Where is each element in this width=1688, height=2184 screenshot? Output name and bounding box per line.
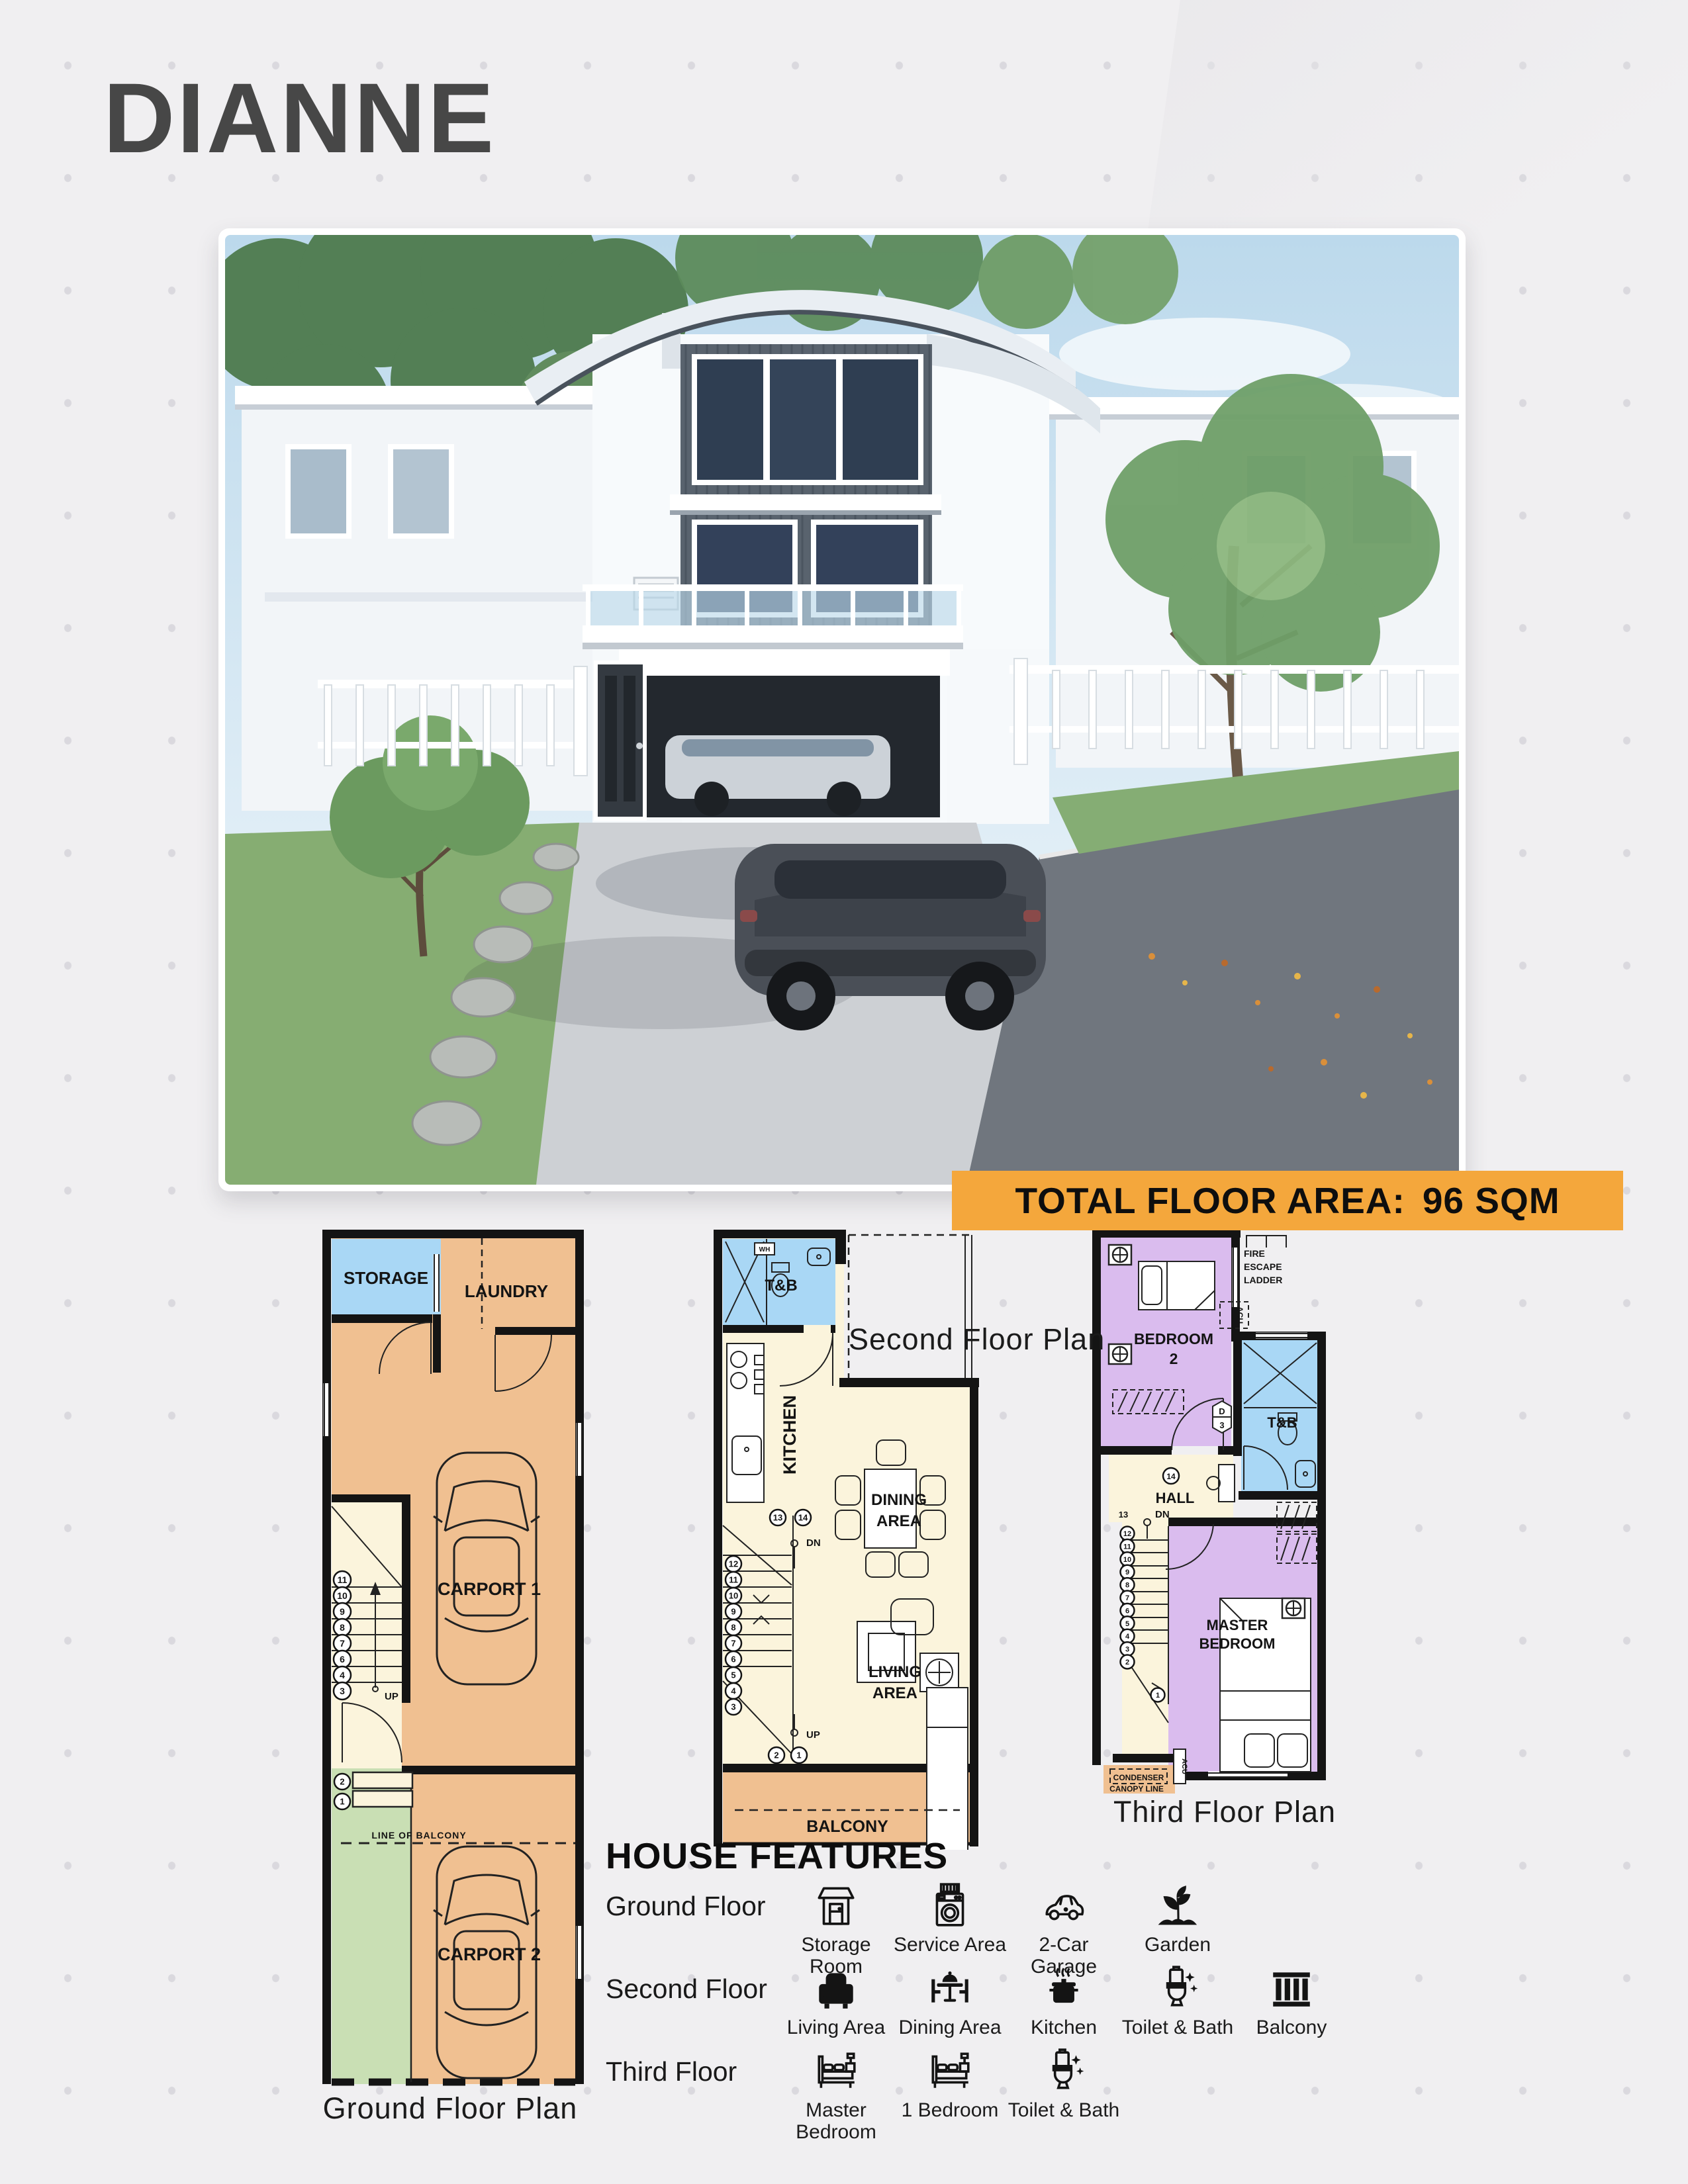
fire-label-1: FIRE [1244, 1248, 1265, 1259]
garden-icon [1154, 1882, 1201, 1929]
master-bedroom-icon [812, 2047, 860, 2095]
condenser-label: CONDENSER [1113, 1773, 1164, 1782]
second-floor-plan: WH DN UP [695, 1224, 1006, 1850]
flyer-page: DIANNE [0, 0, 1688, 2184]
house-features-heading: HOUSE FEATURES [606, 1835, 948, 1877]
stair-number-label: 12 [1123, 1530, 1131, 1538]
stair-number-label: 6 [731, 1655, 735, 1664]
stair-number-label: 4 [1125, 1633, 1130, 1641]
dn-label: DN [806, 1537, 821, 1549]
stair-number-label: 6 [1125, 1607, 1129, 1615]
stair-number-label: 9 [1125, 1569, 1129, 1576]
bedroom2-label-2: 2 [1170, 1350, 1178, 1367]
feature-item: Storage Room [778, 1882, 894, 1978]
feature-item: Kitchen [1006, 1964, 1122, 2038]
feature-item: Garden [1119, 1882, 1236, 1956]
floor-area-label: TOTAL FLOOR AREA: [1015, 1179, 1405, 1222]
feature-label: Living Area [778, 2017, 894, 2038]
living-label-1: LIVING [868, 1663, 921, 1681]
ground-floor-plan: STORAGE LAUNDRY CARPORT 1 CARPORT 2 LINE… [301, 1224, 599, 2101]
feature-label: Kitchen [1006, 2017, 1122, 2038]
hall-label: HALL [1156, 1490, 1195, 1506]
front-door [596, 662, 645, 819]
feature-item: 1 Bedroom [892, 2047, 1008, 2121]
garden-area [332, 1768, 411, 2084]
storage-label: STORAGE [344, 1268, 428, 1288]
feature-label: Toilet & Bath [1006, 2099, 1122, 2121]
house-photo [218, 228, 1466, 1191]
bedroom2-label-1: BEDROOM [1134, 1330, 1213, 1347]
feature-floor-label: Second Floor [606, 1974, 767, 2005]
stair-number-label: 11 [729, 1575, 738, 1585]
tb-label: T&B [765, 1277, 797, 1295]
feature-item: Balcony [1233, 1964, 1350, 2038]
carport1-label: CARPORT 1 [438, 1579, 541, 1599]
stair-number-label: 11 [338, 1574, 348, 1585]
floor-area-banner: TOTAL FLOOR AREA: 96 SQM [952, 1171, 1623, 1230]
stair-number-label: 2 [774, 1751, 778, 1760]
stair-number-label: 12 [729, 1559, 738, 1569]
service-area-icon [926, 1882, 974, 1929]
stair-number-label: 8 [1125, 1582, 1129, 1590]
toilet-bath-icon [1040, 2047, 1088, 2095]
master-label-1: MASTER [1207, 1617, 1268, 1633]
feature-label: Garden [1119, 1934, 1236, 1956]
dining-label-1: DINING [871, 1491, 927, 1509]
picket-fence-left [318, 666, 587, 776]
living-label-2: AREA [872, 1684, 917, 1702]
bedroom-icon [926, 2047, 974, 2095]
stair-number-label: 13 [773, 1513, 782, 1523]
stair-number-label: 5 [1125, 1620, 1129, 1628]
tb-label: T&B [1267, 1414, 1297, 1431]
line-of-balcony-label: LINE OF BALCONY [371, 1830, 466, 1841]
up-label: UP [385, 1691, 399, 1702]
feature-item: 2-Car Garage [1006, 1882, 1122, 1978]
acu-bottom-label: ACU [1180, 1758, 1188, 1774]
stair-number-label: 9 [340, 1606, 345, 1617]
kitchen-label: KITCHEN [780, 1395, 800, 1475]
living-area-icon [812, 1964, 860, 2012]
stair-number-label: 3 [731, 1702, 735, 1712]
feature-item: Living Area [778, 1964, 894, 2038]
canopy-line-label: CANOPY LINE [1109, 1784, 1164, 1794]
balcony-icon [1268, 1964, 1315, 2012]
feature-item: Service Area [892, 1882, 1008, 1956]
stair-number-label: 10 [337, 1590, 348, 1601]
step13-label: 13 [1119, 1510, 1128, 1520]
feature-floor-label: Third Floor [606, 2056, 737, 2087]
door-d-label: D [1219, 1406, 1225, 1416]
dn-label: DN [1155, 1509, 1170, 1520]
feature-label: 1 Bedroom [892, 2099, 1008, 2121]
feature-label: Service Area [892, 1934, 1008, 1956]
balcony-label: BALCONY [806, 1817, 888, 1836]
third-plan-caption: Third Floor Plan [1089, 1795, 1360, 1829]
stair-number-label: 3 [340, 1686, 345, 1696]
stair-number-label: 8 [340, 1622, 345, 1633]
feature-item: Toilet & Bath [1006, 2047, 1122, 2121]
stair-number-label: 1 [340, 1797, 344, 1807]
kitchen-icon [1040, 1964, 1088, 2012]
fire-label-2: ESCAPE [1244, 1261, 1282, 1272]
stair-number-label: 7 [1125, 1594, 1129, 1602]
up-label: UP [806, 1729, 820, 1741]
stair-number-label: 10 [729, 1591, 738, 1601]
ground-plan-caption: Ground Floor Plan [301, 2091, 599, 2126]
fire-label-3: LADDER [1244, 1275, 1282, 1285]
carport2-label: CARPORT 2 [438, 1944, 541, 1964]
stair-number-label: 14 [798, 1513, 808, 1523]
stair-number-label: 11 [1123, 1543, 1131, 1551]
laundry-label: LAUNDRY [465, 1281, 548, 1301]
stair-number-label: 6 [340, 1654, 345, 1664]
stair-number-label: 1 [1156, 1692, 1160, 1700]
wh-label: WH [759, 1246, 771, 1253]
toilet-bath-icon [1154, 1964, 1201, 2012]
stair-number-label: 10 [1123, 1556, 1131, 1564]
stair-number-label: 3 [1125, 1646, 1129, 1654]
house-render [225, 235, 1459, 1185]
feature-label: Dining Area [892, 2017, 1008, 2038]
feature-label: Toilet & Bath [1119, 2017, 1236, 2038]
feature-item: Dining Area [892, 1964, 1008, 2038]
stair-number-label: 2 [1125, 1659, 1129, 1666]
stair-number-label: 4 [731, 1686, 736, 1696]
landing14-label: 14 [1166, 1472, 1176, 1481]
storage-room-icon [812, 1882, 860, 1929]
third-floor-plan: D 3 14 13 DN BEDROOM 2 FIRE ESCAPE LADD [1089, 1228, 1357, 1800]
stair-number-label: 8 [731, 1623, 735, 1633]
master-label-2: BEDROOM [1199, 1635, 1276, 1652]
second-plan-caption: Second Floor Plan [849, 1322, 1105, 1357]
floor-area-value: 96 SQM [1423, 1179, 1560, 1222]
feature-label: Master Bedroom [778, 2099, 894, 2143]
car-garage-icon [1040, 1882, 1088, 1929]
stair-number-label: 7 [731, 1639, 735, 1649]
stair-number-label: 5 [731, 1670, 735, 1680]
stair-number-label: 2 [340, 1777, 344, 1787]
feature-label: Balcony [1233, 2017, 1350, 2038]
feature-item: Toilet & Bath [1119, 1964, 1236, 2038]
acu-side-label: ACU [1235, 1306, 1244, 1324]
page-title: DIANNE [103, 64, 496, 173]
stair-number-label: 9 [731, 1607, 735, 1617]
dining-label-2: AREA [876, 1512, 921, 1530]
stair-number-label: 7 [340, 1638, 345, 1649]
feature-floor-label: Ground Floor [606, 1891, 766, 1922]
door-3-label: 3 [1219, 1420, 1224, 1430]
feature-item: Master Bedroom [778, 2047, 894, 2143]
dining-area-icon [926, 1964, 974, 2012]
stair-number-label: 1 [796, 1751, 801, 1760]
stair-number-label: 4 [340, 1670, 345, 1680]
